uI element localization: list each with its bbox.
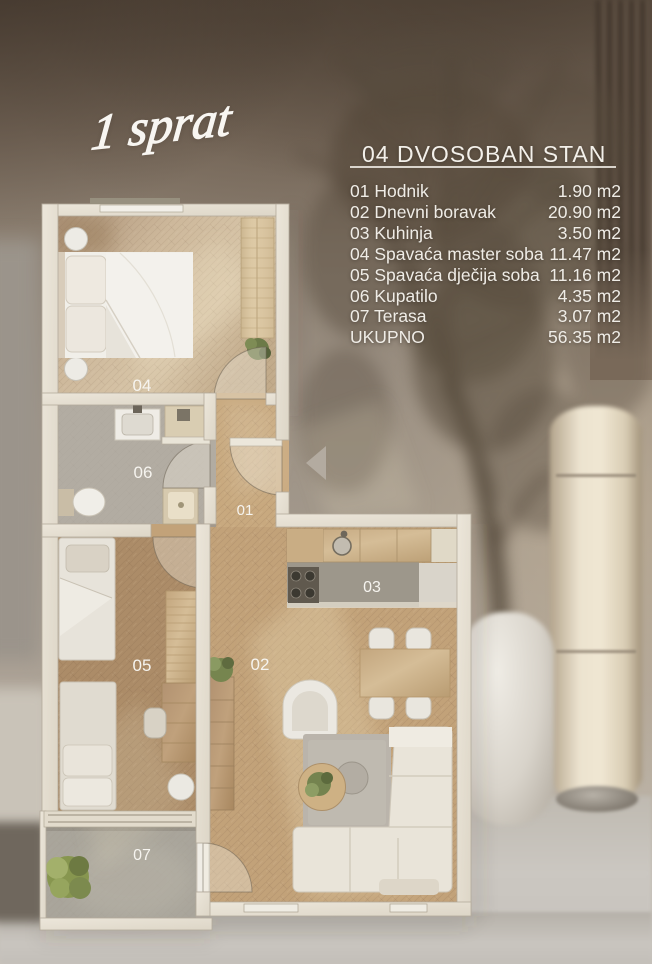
svg-text:04: 04	[133, 376, 152, 395]
svg-text:06: 06	[134, 463, 153, 482]
svg-text:05: 05	[133, 656, 152, 675]
svg-text:02: 02	[251, 655, 270, 674]
svg-text:03: 03	[363, 579, 381, 596]
svg-text:07: 07	[133, 847, 151, 864]
svg-text:01: 01	[237, 502, 254, 519]
